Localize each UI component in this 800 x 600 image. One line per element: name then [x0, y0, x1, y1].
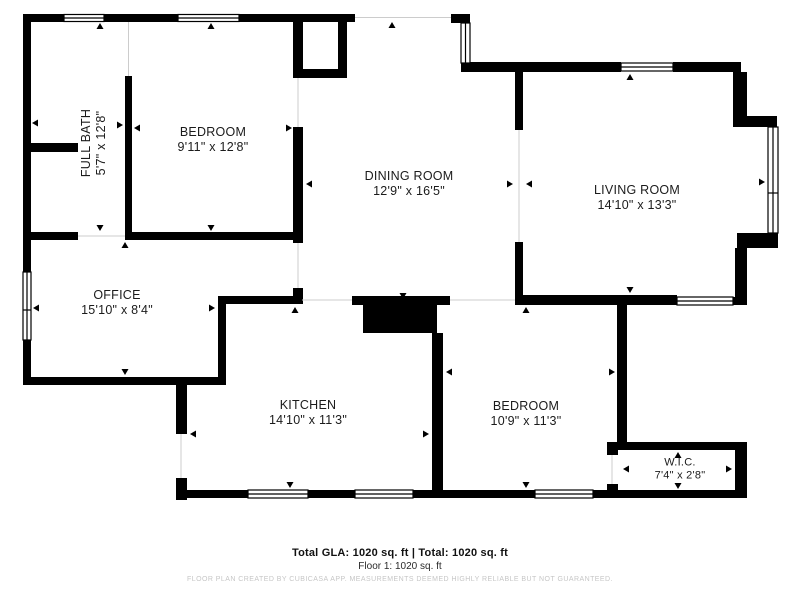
watermark-text: FLOOR PLAN CREATED BY CUBICASA APP. MEAS…: [0, 576, 800, 583]
room-dims: 7'4" x 2'8": [655, 470, 706, 483]
room-label-kitchen: KITCHEN 14'10" x 11'3": [269, 398, 347, 429]
room-label-full-bath: FULL BATH 5'7" x 12'8": [79, 109, 110, 177]
floor-plan-page: FULL BATH 5'7" x 12'8" BEDROOM 9'11" x 1…: [0, 0, 800, 600]
room-label-office: OFFICE 15'10" x 8'4": [81, 288, 153, 319]
room-dims: 14'10" x 13'3": [594, 198, 680, 213]
room-label-dining-room: DINING ROOM 12'9" x 16'5": [365, 169, 454, 200]
room-name: DINING ROOM: [365, 169, 454, 184]
room-dims: 5'7" x 12'8": [94, 109, 109, 177]
room-dims: 10'9" x 11'3": [491, 414, 562, 429]
total-gla-text: Total GLA: 1020 sq. ft | Total: 1020 sq.…: [0, 547, 800, 559]
room-dims: 15'10" x 8'4": [81, 303, 153, 318]
room-name: OFFICE: [81, 288, 153, 303]
room-name: FULL BATH: [79, 109, 94, 177]
room-label-living-room: LIVING ROOM 14'10" x 13'3": [594, 183, 680, 214]
walls: [23, 14, 778, 500]
room-label-bedroom-1: BEDROOM 9'11" x 12'8": [178, 125, 249, 156]
room-label-wic: W.I.C. 7'4" x 2'8": [655, 457, 706, 484]
room-name: KITCHEN: [269, 398, 347, 413]
room-dims: 14'10" x 11'3": [269, 413, 347, 428]
measure-arrows: [32, 22, 765, 489]
windows: [23, 15, 778, 499]
room-name: BEDROOM: [491, 399, 562, 414]
room-name: BEDROOM: [178, 125, 249, 140]
room-name: W.I.C.: [655, 457, 706, 470]
room-dims: 12'9" x 16'5": [365, 184, 454, 199]
room-label-bedroom-2: BEDROOM 10'9" x 11'3": [491, 399, 562, 430]
room-name: LIVING ROOM: [594, 183, 680, 198]
floor-total-text: Floor 1: 1020 sq. ft: [0, 561, 800, 572]
room-dims: 9'11" x 12'8": [178, 140, 249, 155]
